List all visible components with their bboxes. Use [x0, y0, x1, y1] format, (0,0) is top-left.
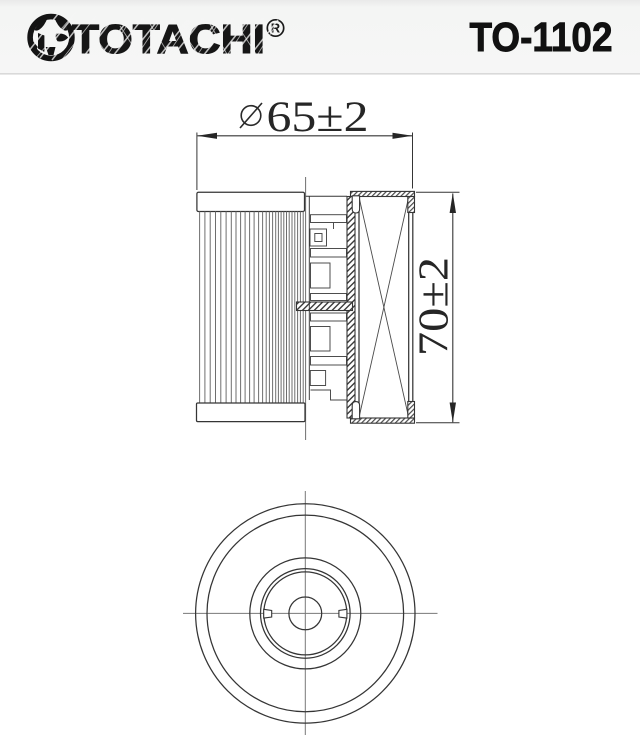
- svg-text:TO-1102: TO-1102: [470, 14, 613, 60]
- svg-text:70±2: 70±2: [412, 257, 458, 356]
- svg-text:65±2: 65±2: [267, 93, 369, 141]
